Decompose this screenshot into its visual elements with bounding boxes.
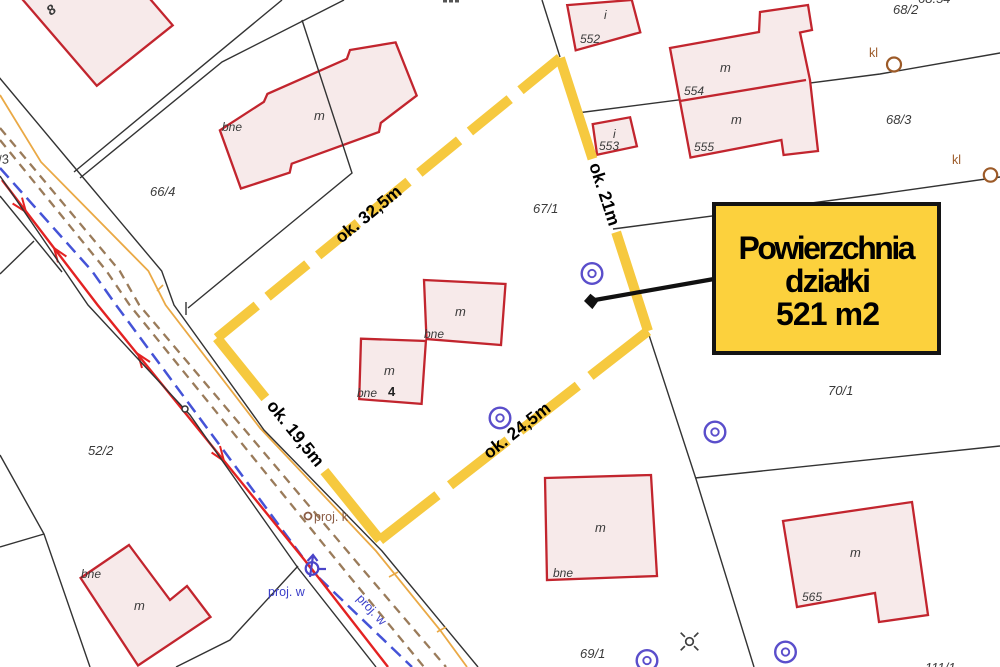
- svg-text:bne: bne: [424, 327, 444, 341]
- svg-text:proj. k: proj. k: [314, 510, 349, 524]
- svg-text:4: 4: [388, 384, 396, 399]
- svg-text:68.54: 68.54: [918, 0, 951, 6]
- svg-text:m: m: [850, 545, 861, 560]
- svg-text:68/3: 68/3: [886, 112, 912, 127]
- svg-text:bne: bne: [357, 386, 377, 400]
- svg-text:552: 552: [580, 32, 600, 46]
- svg-text:111/1: 111/1: [925, 660, 956, 667]
- svg-text:69/1: 69/1: [580, 646, 605, 661]
- svg-text:m: m: [720, 60, 731, 75]
- svg-text:553: 553: [599, 139, 619, 153]
- svg-text:m: m: [314, 108, 325, 123]
- svg-text:m: m: [384, 363, 395, 378]
- svg-text:bne: bne: [553, 566, 573, 580]
- svg-text:m: m: [455, 304, 466, 319]
- svg-text:67/1: 67/1: [533, 201, 558, 216]
- svg-text:52/2: 52/2: [88, 443, 114, 458]
- svg-text:i: i: [604, 8, 607, 22]
- svg-text:proj. w: proj. w: [268, 585, 306, 599]
- svg-text:554: 554: [684, 84, 704, 98]
- svg-text:521 m2: 521 m2: [776, 296, 880, 332]
- svg-text:66/4: 66/4: [150, 184, 175, 199]
- svg-text:70/1: 70/1: [828, 383, 853, 398]
- svg-text:m: m: [134, 598, 145, 613]
- svg-text:i: i: [613, 127, 616, 141]
- svg-text:68/2: 68/2: [893, 2, 919, 17]
- svg-text:m: m: [595, 520, 606, 535]
- svg-text:działki: działki: [785, 263, 871, 299]
- svg-text:m: m: [731, 112, 742, 127]
- svg-text:kl: kl: [952, 153, 961, 167]
- svg-text:565: 565: [802, 590, 822, 604]
- svg-text:555: 555: [694, 140, 714, 154]
- svg-text:Powierzchnia: Powierzchnia: [739, 230, 916, 266]
- svg-text:bne: bne: [222, 120, 242, 134]
- svg-text:kl: kl: [869, 46, 878, 60]
- svg-text:bne: bne: [81, 567, 101, 581]
